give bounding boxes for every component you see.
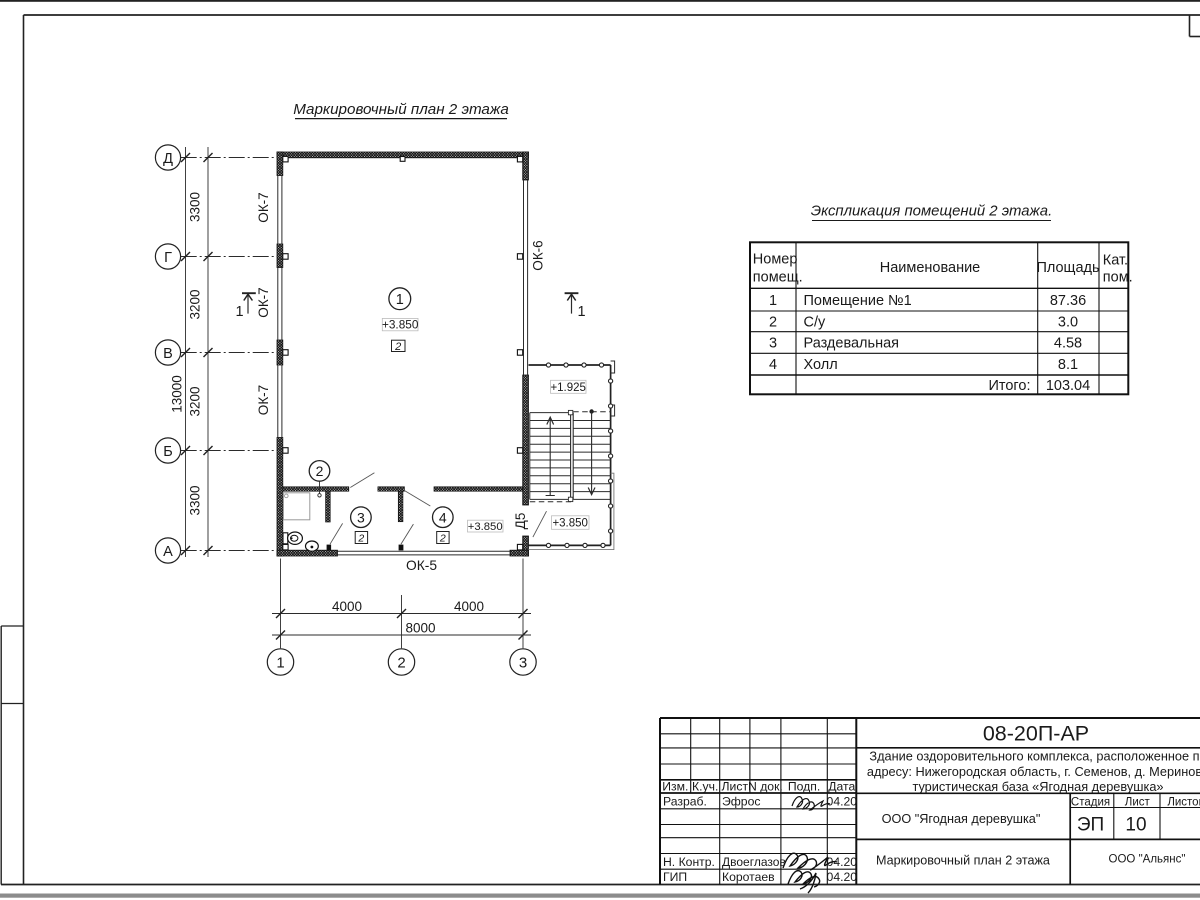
svg-text:+1.925: +1.925	[550, 382, 586, 394]
svg-text:4: 4	[439, 509, 447, 525]
svg-text:4000: 4000	[454, 599, 484, 614]
svg-text:Д5: Д5	[513, 513, 528, 530]
svg-text:103.04: 103.04	[1046, 378, 1090, 394]
svg-text:3: 3	[769, 336, 777, 352]
svg-text:+3.850: +3.850	[552, 518, 588, 530]
svg-text:3200: 3200	[188, 386, 203, 416]
svg-text:Маркировочный план 2 этажа: Маркировочный план 2 этажа	[876, 854, 1050, 868]
svg-text:ГИП: ГИП	[663, 870, 687, 884]
svg-text:ОК-6: ОК-6	[531, 240, 546, 270]
svg-text:2: 2	[316, 463, 324, 479]
svg-text:4: 4	[769, 357, 777, 373]
svg-text:87.36: 87.36	[1050, 293, 1086, 309]
svg-text:3.0: 3.0	[1058, 314, 1078, 330]
svg-text:Д: Д	[163, 151, 173, 167]
svg-text:адресу: Нижегородская область,: адресу: Нижегородская область, г. Семено…	[867, 764, 1200, 779]
svg-text:8000: 8000	[406, 621, 436, 636]
svg-text:+3.850: +3.850	[468, 521, 503, 533]
svg-text:Коротаев: Коротаев	[722, 870, 775, 884]
svg-text:ОК-5: ОК-5	[406, 558, 437, 573]
svg-text:3200: 3200	[188, 289, 203, 319]
svg-text:Подп.: Подп.	[788, 779, 820, 793]
svg-text:ОК-7: ОК-7	[256, 287, 271, 317]
svg-text:ОК-7: ОК-7	[256, 385, 271, 415]
svg-text:Экспликация помещений 2 этажа.: Экспликация помещений 2 этажа.	[811, 204, 1052, 220]
svg-text:Разраб.: Разраб.	[663, 795, 707, 809]
svg-text:13000: 13000	[170, 375, 185, 413]
svg-text:Дата: Дата	[828, 779, 855, 793]
svg-text:8.1: 8.1	[1058, 357, 1078, 373]
svg-text:Двоеглазов: Двоеглазов	[722, 855, 786, 869]
svg-text:К.уч.: К.уч.	[692, 779, 718, 793]
svg-text:ОК-7: ОК-7	[256, 192, 271, 222]
svg-text:Изм.: Изм.	[662, 779, 688, 793]
svg-text:Маркировочный план 2 этажа: Маркировочный план 2 этажа	[293, 101, 509, 118]
svg-text:N док.: N док.	[748, 779, 783, 793]
svg-text:Стадия: Стадия	[1071, 797, 1110, 809]
svg-text:Листов: Листов	[1167, 797, 1200, 809]
svg-text:Г: Г	[164, 250, 172, 266]
svg-text:В: В	[163, 346, 173, 362]
svg-text:Лист: Лист	[1125, 797, 1151, 809]
svg-text:3: 3	[357, 509, 365, 525]
svg-text:Н. Контр.: Н. Контр.	[663, 855, 715, 869]
svg-text:1: 1	[396, 292, 404, 308]
svg-text:ЭП: ЭП	[1077, 815, 1104, 836]
svg-text:2: 2	[397, 654, 405, 671]
svg-text:04.20: 04.20	[827, 870, 858, 884]
svg-text:1: 1	[276, 654, 284, 671]
svg-text:2: 2	[357, 533, 364, 545]
svg-text:Б: Б	[163, 444, 173, 460]
svg-text:Эфрос: Эфрос	[722, 795, 760, 809]
svg-text:10: 10	[1125, 815, 1146, 836]
svg-text:2: 2	[769, 314, 777, 330]
svg-text:Номер: Номер	[753, 252, 798, 268]
svg-text:2: 2	[439, 533, 446, 545]
svg-text:4000: 4000	[332, 599, 362, 614]
svg-text:1: 1	[577, 304, 585, 320]
svg-text:08-20П-АР: 08-20П-АР	[983, 722, 1089, 746]
svg-text:+3.850: +3.850	[382, 318, 419, 332]
svg-text:Итого:: Итого:	[988, 378, 1030, 394]
svg-text:С/у: С/у	[804, 314, 827, 330]
svg-text:пом.: пом.	[1103, 270, 1133, 286]
svg-text:04.20: 04.20	[827, 795, 858, 809]
svg-text:Лист: Лист	[722, 779, 749, 793]
svg-text:2: 2	[394, 341, 401, 353]
svg-text:туристическая база «Ягодная де: туристическая база «Ягодная деревушка»	[912, 779, 1163, 794]
svg-text:Здание оздоровительного компле: Здание оздоровительного комплекса, распо…	[869, 749, 1200, 764]
svg-text:А: А	[163, 544, 173, 560]
svg-text:ООО "Ягодная деревушка": ООО "Ягодная деревушка"	[882, 812, 1041, 826]
svg-text:3300: 3300	[188, 485, 203, 515]
svg-text:4.58: 4.58	[1054, 336, 1082, 352]
svg-text:1: 1	[769, 293, 777, 309]
svg-text:Холл: Холл	[804, 357, 838, 373]
svg-text:Кат.: Кат.	[1103, 253, 1128, 269]
svg-text:Площадь: Площадь	[1036, 260, 1099, 276]
svg-text:Раздевальная: Раздевальная	[804, 336, 900, 352]
svg-text:3300: 3300	[188, 192, 203, 222]
svg-text:1: 1	[235, 304, 243, 320]
svg-text:3: 3	[519, 654, 527, 671]
svg-text:помещ.: помещ.	[753, 270, 803, 286]
svg-text:Наименование: Наименование	[880, 260, 981, 276]
svg-text:ООО "Альянс": ООО "Альянс"	[1109, 853, 1186, 865]
svg-text:Помещение №1: Помещение №1	[804, 293, 912, 309]
